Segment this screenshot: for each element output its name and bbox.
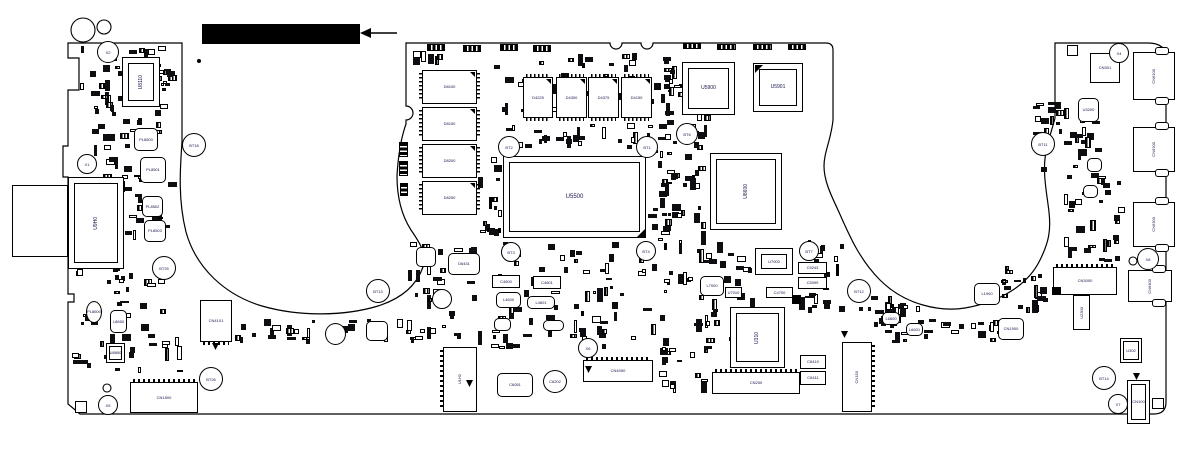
smd-passive xyxy=(665,183,668,196)
smd-passive xyxy=(1023,278,1026,282)
smd-passive xyxy=(81,46,85,53)
smd-passive xyxy=(472,295,477,301)
smd-passive xyxy=(410,242,417,247)
smd-passive xyxy=(667,120,674,124)
smd-passive xyxy=(990,322,994,332)
smd-passive xyxy=(605,263,609,274)
smd-passive xyxy=(728,253,734,257)
smd-passive xyxy=(133,230,136,239)
smd-passive xyxy=(602,127,606,139)
smd-passive xyxy=(578,141,582,146)
ref-designator-BT4: BT4 xyxy=(636,241,656,261)
component-L1900: L1900 xyxy=(974,283,1000,305)
ref-designator-X8: X8 xyxy=(1137,248,1159,270)
smd-passive xyxy=(1064,194,1067,205)
smd-passive xyxy=(108,134,115,140)
pin1-marker-icon xyxy=(470,72,475,77)
smd-passive xyxy=(140,303,147,309)
smd-passive xyxy=(735,279,741,286)
smd-passive xyxy=(1014,280,1020,283)
component-U7010: U7010 xyxy=(725,287,742,298)
smd-passive xyxy=(437,54,443,60)
smd-passive xyxy=(349,320,356,324)
smd-passive xyxy=(699,249,704,263)
smd-passive xyxy=(568,58,575,62)
smd-passive xyxy=(1040,287,1047,294)
smd-passive xyxy=(585,57,594,62)
smd-passive xyxy=(658,161,662,168)
smd-passive xyxy=(1115,256,1120,261)
component-label: CN1900 xyxy=(1004,327,1019,331)
component-CN150: CN150 xyxy=(842,342,872,412)
smd-passive xyxy=(440,268,445,273)
smd-passive xyxy=(1050,116,1054,124)
smd-passive xyxy=(943,322,951,326)
smd-passive xyxy=(560,255,565,261)
smd-passive xyxy=(642,269,646,273)
component-label: U8110 xyxy=(139,75,144,89)
component-part xyxy=(792,295,801,304)
smd-passive xyxy=(149,343,158,346)
smd-passive xyxy=(580,328,586,338)
ref-designator-BT26: BT26 xyxy=(199,367,223,391)
smd-passive xyxy=(103,65,110,72)
smd-passive xyxy=(929,319,935,322)
smd-passive xyxy=(120,301,129,304)
component-C6410: C6410 xyxy=(800,355,826,369)
smd-passive xyxy=(161,83,164,86)
component-CN4101: CN4101 xyxy=(200,300,232,342)
component-label: D4225 xyxy=(532,96,544,100)
smd-passive xyxy=(839,306,846,312)
component-D4225: D4225 xyxy=(523,77,553,118)
smd-passive xyxy=(1035,116,1041,123)
component-part xyxy=(399,142,408,157)
component-label: C6051 xyxy=(509,383,521,387)
smd-passive xyxy=(79,360,88,364)
smd-passive xyxy=(1075,199,1082,204)
smd-passive xyxy=(123,119,131,124)
pin1-marker-icon xyxy=(470,109,475,114)
smd-passive xyxy=(80,83,84,90)
smd-passive xyxy=(105,80,111,91)
smd-passive xyxy=(612,302,618,309)
smd-passive xyxy=(670,70,674,74)
smd-passive xyxy=(125,144,130,148)
pin1-marker-icon xyxy=(612,79,617,84)
smd-passive xyxy=(156,122,161,128)
smd-passive xyxy=(147,283,156,287)
component-U1H2: U1H2 xyxy=(443,347,477,412)
smd-passive xyxy=(158,46,166,51)
smd-passive xyxy=(574,304,578,309)
component-U8110: U8110 xyxy=(122,57,160,107)
component-C4601: C4601 xyxy=(533,276,561,289)
smd-passive xyxy=(652,224,658,230)
smd-passive xyxy=(442,325,446,328)
smd-passive xyxy=(110,105,114,111)
smd-passive xyxy=(478,331,481,345)
smd-passive xyxy=(570,250,574,257)
smd-passive xyxy=(578,54,583,66)
smd-passive xyxy=(467,281,475,284)
smd-passive xyxy=(1069,201,1075,208)
component-label: PL8600 xyxy=(87,310,101,314)
component-part xyxy=(1052,287,1061,295)
mounting-hole xyxy=(103,384,111,392)
smd-passive xyxy=(1113,235,1119,241)
component-label: U7010 xyxy=(728,291,740,295)
smd-passive xyxy=(1115,220,1120,224)
smd-passive xyxy=(122,334,131,341)
smd-passive xyxy=(294,329,300,335)
component-label: D8100 xyxy=(444,85,456,89)
pin1-marker-icon xyxy=(546,79,551,84)
smd-passive xyxy=(874,322,878,327)
smd-passive xyxy=(886,303,891,310)
smd-passive xyxy=(148,49,155,55)
component-label: D8200 xyxy=(444,159,456,163)
component-C5243: C5243 xyxy=(798,262,827,274)
smd-passive xyxy=(95,109,99,114)
smd-passive xyxy=(494,65,500,70)
component-label: CN100 xyxy=(1132,400,1144,404)
smd-passive xyxy=(119,279,125,282)
component-label: C6202 xyxy=(549,380,561,384)
smd-passive xyxy=(916,306,920,312)
smd-passive xyxy=(307,328,310,338)
smd-passive xyxy=(631,336,636,339)
smd-passive xyxy=(1085,137,1091,148)
smd-passive xyxy=(677,360,682,363)
smd-passive xyxy=(665,111,674,116)
smd-passive xyxy=(602,329,607,334)
smd-passive xyxy=(539,61,544,65)
smd-passive xyxy=(669,348,676,352)
ref-designator-X4: X4 xyxy=(1109,43,1129,63)
component-C4700: C4700 xyxy=(766,287,793,298)
smd-passive xyxy=(581,311,584,316)
component-U5901: U5901 xyxy=(753,63,803,112)
component-label: CN250 xyxy=(750,381,762,385)
component-label: PL8503 xyxy=(148,229,162,233)
smd-passive xyxy=(685,154,693,160)
component-label: CN4101 xyxy=(209,319,224,323)
ref-designator-X5: X5 xyxy=(98,395,118,415)
ref-designator-BT2: BT2 xyxy=(498,136,520,158)
component-part xyxy=(366,321,388,341)
smd-passive xyxy=(706,253,712,258)
smd-passive xyxy=(427,266,432,275)
component-label: CN6200 xyxy=(1152,142,1156,157)
smd-passive xyxy=(604,287,608,296)
smd-passive xyxy=(662,347,666,351)
smd-passive xyxy=(652,264,658,271)
smd-passive xyxy=(669,79,673,83)
component-label: D4300 xyxy=(566,96,578,100)
smd-passive xyxy=(1068,209,1075,212)
smd-passive xyxy=(694,142,700,148)
smd-passive xyxy=(971,323,976,329)
smd-passive xyxy=(124,166,132,172)
smd-passive xyxy=(529,318,534,325)
smd-passive xyxy=(674,85,681,89)
component-label: CN1800 xyxy=(157,396,172,400)
smd-passive xyxy=(698,132,705,139)
smd-passive xyxy=(241,324,246,331)
component-label: C4601 xyxy=(541,281,553,285)
component-part xyxy=(1152,398,1164,409)
smd-passive xyxy=(491,344,499,348)
smd-passive xyxy=(454,333,459,336)
smd-passive xyxy=(506,343,514,349)
component-part xyxy=(1083,185,1098,198)
ref-designator-BT14: BT14 xyxy=(1092,366,1116,390)
smd-passive xyxy=(672,204,680,211)
smd-passive xyxy=(534,130,542,134)
smd-passive xyxy=(407,320,412,331)
smd-passive xyxy=(660,151,663,158)
smd-passive xyxy=(129,273,133,278)
smd-passive xyxy=(701,222,706,229)
component-C4600: C4600 xyxy=(492,275,520,288)
smd-passive xyxy=(659,371,667,377)
smd-passive xyxy=(421,51,426,62)
smd-passive xyxy=(155,110,160,116)
smd-passive xyxy=(683,272,687,285)
smd-passive xyxy=(423,288,429,294)
smd-passive xyxy=(660,315,665,320)
component-label: C5243 xyxy=(807,266,819,270)
component-part xyxy=(533,45,551,52)
smd-passive xyxy=(480,230,487,233)
component-C6411: C6411 xyxy=(800,371,826,385)
smd-passive xyxy=(137,120,142,125)
smd-passive xyxy=(706,321,710,326)
component-U8600: U8600 xyxy=(710,153,782,230)
smd-passive xyxy=(100,341,104,346)
smd-passive xyxy=(1117,181,1122,185)
smd-passive xyxy=(168,182,177,188)
component-PL8501: PL8501 xyxy=(140,157,166,183)
smd-passive xyxy=(91,91,100,96)
smd-passive xyxy=(103,134,108,141)
smd-passive xyxy=(505,103,508,115)
smd-passive xyxy=(606,278,613,281)
smd-passive xyxy=(413,58,420,65)
smd-passive xyxy=(348,324,355,331)
smd-passive xyxy=(614,312,618,321)
smd-passive xyxy=(141,324,149,331)
component-label: C5099 xyxy=(807,281,819,285)
smd-passive xyxy=(720,261,726,268)
smd-passive xyxy=(737,256,746,262)
smd-passive xyxy=(653,208,658,211)
smd-passive xyxy=(524,290,529,296)
ref-designator-BT25: BT25 xyxy=(152,256,176,280)
mounting-hole xyxy=(1129,257,1137,265)
smd-passive xyxy=(622,54,630,59)
smd-passive xyxy=(1038,274,1042,278)
smd-passive xyxy=(77,269,83,276)
component-D4150: D4150 xyxy=(621,77,652,118)
smd-passive xyxy=(420,329,425,333)
smd-passive xyxy=(666,103,669,109)
component-D6431: D6431 xyxy=(448,253,480,275)
smd-passive xyxy=(81,322,85,325)
smd-passive xyxy=(1107,240,1111,247)
smd-passive xyxy=(268,335,277,339)
smd-passive xyxy=(665,134,671,140)
component-label: U2300 xyxy=(1080,307,1084,319)
smd-passive xyxy=(160,309,165,314)
smd-passive xyxy=(312,320,315,323)
smd-passive xyxy=(491,157,498,163)
smd-passive xyxy=(177,346,181,360)
smd-passive xyxy=(166,225,169,229)
smd-passive xyxy=(706,338,715,343)
smd-passive xyxy=(690,352,694,358)
smd-passive xyxy=(90,71,96,77)
smd-passive xyxy=(1041,118,1048,124)
component-U302: U302 xyxy=(1120,338,1142,363)
smd-passive xyxy=(177,370,183,373)
component-part xyxy=(1067,45,1078,56)
component-label: C6410 xyxy=(807,360,819,364)
smd-passive xyxy=(1002,294,1007,299)
smd-passive xyxy=(566,139,571,144)
smd-passive xyxy=(94,106,98,109)
smd-passive xyxy=(658,238,663,241)
component-part xyxy=(543,320,564,331)
smd-passive xyxy=(665,219,672,226)
mounting-hole xyxy=(97,20,111,34)
smd-passive xyxy=(597,288,603,302)
component-part xyxy=(753,44,772,50)
component-CN250: CN250 xyxy=(712,372,800,394)
component-label: PL8501 xyxy=(146,168,160,172)
smd-passive xyxy=(820,246,824,253)
smd-passive xyxy=(98,124,105,129)
component-label: D6431 xyxy=(458,262,470,266)
smd-passive xyxy=(505,77,514,83)
smd-passive xyxy=(1018,305,1022,309)
component-label: U7000 xyxy=(768,260,780,264)
smd-passive xyxy=(903,339,906,343)
smd-passive xyxy=(551,291,560,294)
smd-passive xyxy=(1064,141,1071,145)
component-CN6300: CN6300 xyxy=(1133,202,1175,247)
smd-passive xyxy=(643,308,651,311)
component-label: U1H2 xyxy=(458,374,462,384)
smd-passive xyxy=(252,333,256,337)
smd-passive xyxy=(668,213,671,216)
component-label: CN6300 xyxy=(1152,217,1156,232)
smd-passive xyxy=(574,259,578,263)
smd-passive xyxy=(903,305,908,310)
smd-passive xyxy=(704,349,708,353)
smd-passive xyxy=(612,242,619,248)
smd-passive xyxy=(115,66,120,69)
smd-passive xyxy=(812,305,817,308)
smd-passive xyxy=(126,313,130,318)
mounting-hole xyxy=(71,18,95,42)
component-L4601: L4601 xyxy=(527,296,555,309)
smd-passive xyxy=(514,261,519,266)
component-U3200: U3200 xyxy=(1078,98,1099,122)
smd-passive xyxy=(129,215,137,218)
smd-passive xyxy=(286,328,295,334)
component-label: U5900 xyxy=(701,86,716,91)
smd-passive xyxy=(115,368,120,371)
component-label: D4375 xyxy=(598,96,610,100)
smd-passive xyxy=(664,279,670,284)
smd-passive xyxy=(951,330,959,334)
component-label: C6411 xyxy=(807,376,819,380)
smd-passive xyxy=(1031,276,1036,282)
component-D4300: D4300 xyxy=(556,77,587,118)
component-D8100: D8100 xyxy=(422,70,477,104)
component-CN6100: CN6100 xyxy=(1133,52,1175,100)
component-L7000: L7000 xyxy=(700,276,724,296)
smd-passive xyxy=(1004,286,1011,289)
component-L8650: L8650 xyxy=(110,310,127,333)
smd-passive xyxy=(695,373,701,377)
smd-passive xyxy=(805,296,813,299)
fiducial-dot xyxy=(197,59,201,63)
smd-passive xyxy=(165,83,169,86)
smd-passive xyxy=(600,321,608,324)
ref-designator-X2: X2 xyxy=(97,41,119,63)
smd-passive xyxy=(1026,307,1030,313)
component-label: U8650 xyxy=(110,351,122,355)
smd-passive xyxy=(736,266,745,270)
component-label: CN6400 xyxy=(1148,279,1152,294)
smd-passive xyxy=(620,293,624,296)
smd-passive xyxy=(694,213,700,224)
component-L4600: L4600 xyxy=(496,292,521,308)
component-part xyxy=(683,43,701,49)
smd-passive xyxy=(654,83,662,90)
component-part xyxy=(432,289,452,309)
smd-passive xyxy=(148,334,155,337)
redacted-label xyxy=(202,24,360,44)
smd-passive xyxy=(438,249,443,255)
component-PL8502: PL8502 xyxy=(142,196,163,217)
smd-passive xyxy=(564,267,568,273)
smd-passive xyxy=(1064,237,1069,247)
component-part xyxy=(325,323,346,345)
smd-passive xyxy=(583,270,589,274)
component-label: U8600 xyxy=(744,184,749,199)
component-part xyxy=(427,44,445,51)
smd-passive xyxy=(673,141,677,145)
ref-designator-BT3: BT3 xyxy=(501,242,521,262)
smd-passive xyxy=(895,332,900,344)
component-label: PL8502 xyxy=(146,205,160,209)
smd-passive xyxy=(924,330,933,333)
smd-passive xyxy=(679,244,682,255)
smd-passive xyxy=(602,344,605,349)
smd-passive xyxy=(112,112,116,117)
smd-passive xyxy=(659,124,667,129)
component-label: U302 xyxy=(1126,349,1136,353)
smd-passive xyxy=(94,145,97,155)
smd-passive xyxy=(669,271,673,274)
smd-passive xyxy=(408,270,412,281)
smd-passive xyxy=(415,293,418,298)
smd-passive xyxy=(678,274,683,284)
